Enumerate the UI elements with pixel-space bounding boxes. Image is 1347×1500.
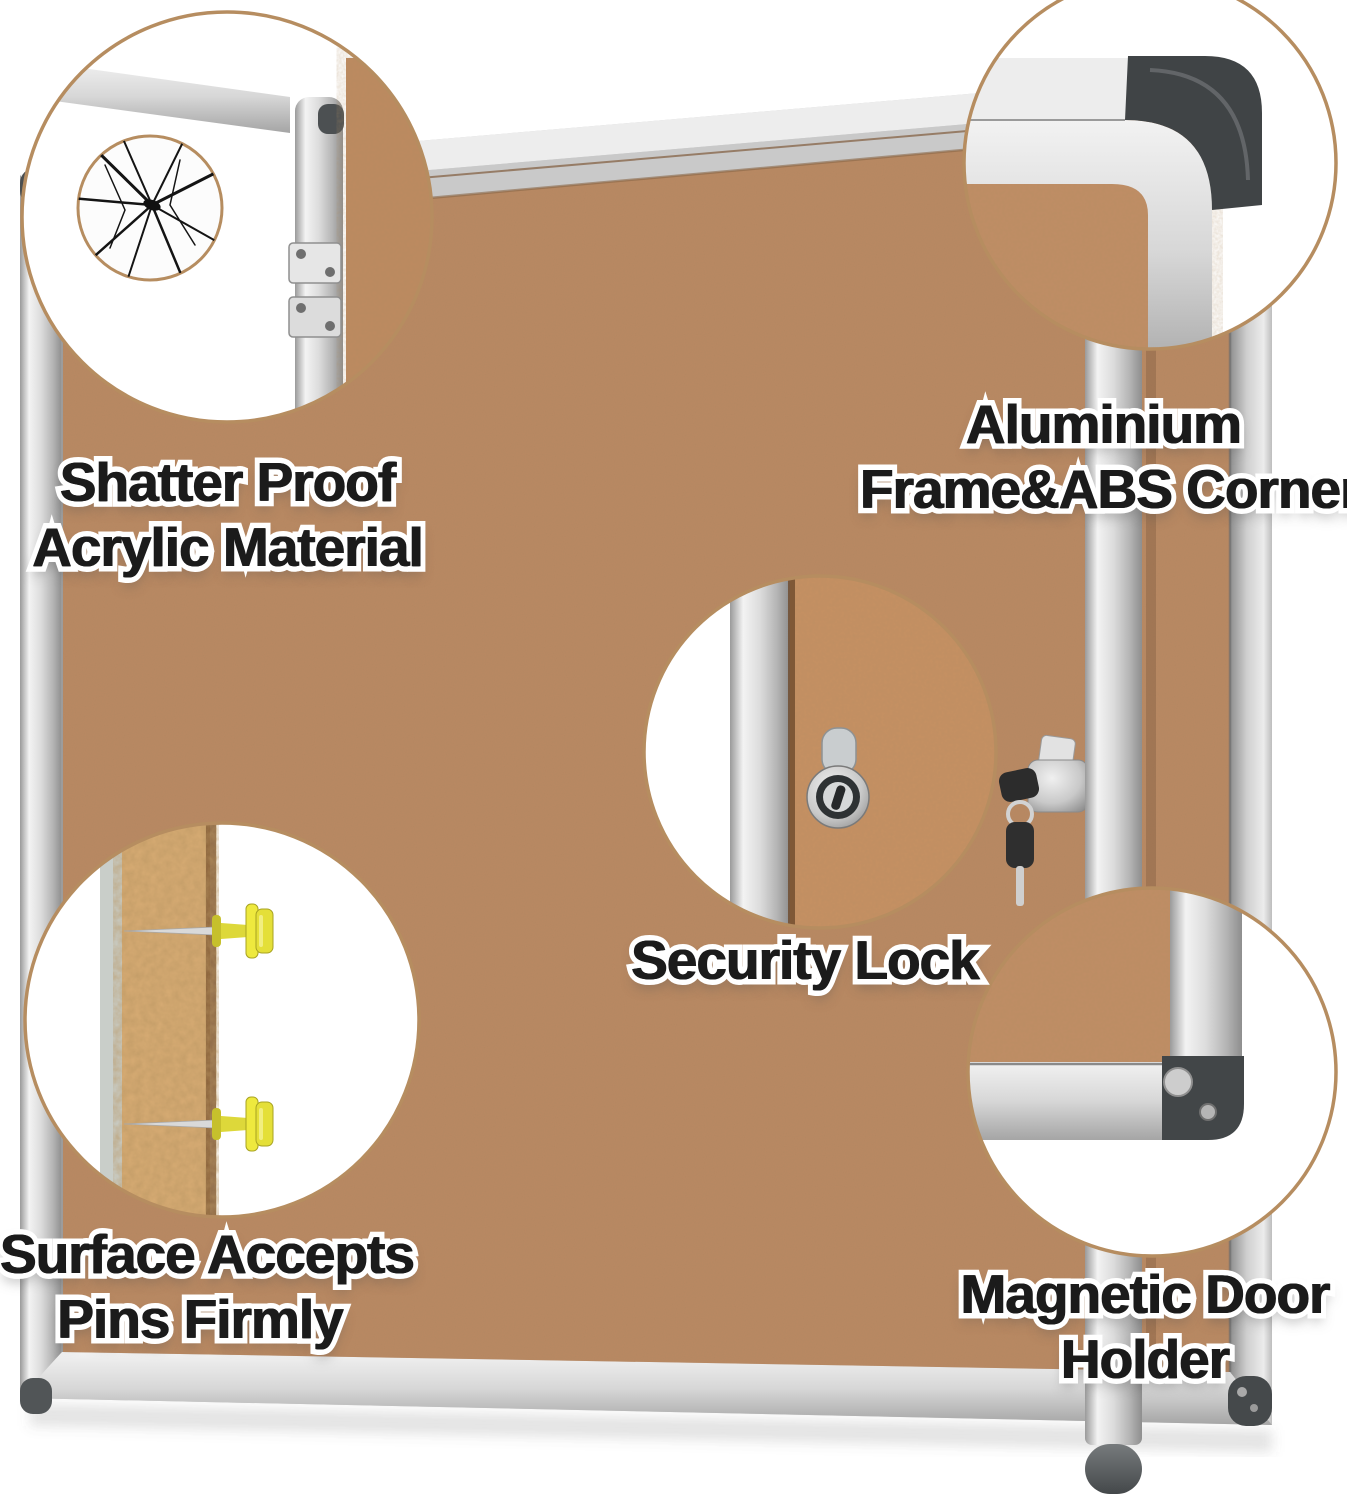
label-line: Magnetic Door bbox=[961, 1262, 1330, 1327]
label-line: Frame&ABS Corners bbox=[860, 457, 1347, 522]
frame-vertical-band bbox=[1170, 885, 1242, 1077]
label-line: Pins Firmly bbox=[57, 1287, 342, 1352]
label-magnetic-holder: Magnetic Door Holder bbox=[950, 1262, 1340, 1392]
label-pin-surface: Surface Accepts Pins Firmly bbox=[0, 1222, 400, 1352]
abs-corner-bottom-left bbox=[20, 1378, 52, 1414]
spare-key-blade bbox=[1016, 866, 1024, 906]
corner-screw bbox=[1200, 1104, 1216, 1120]
spare-key-head bbox=[1006, 822, 1034, 868]
lock-cylinder bbox=[807, 766, 869, 828]
label-line: Acrylic Material bbox=[32, 515, 423, 580]
magnet-disc bbox=[1164, 1068, 1192, 1096]
label-shatter-proof: Shatter Proof Acrylic Material bbox=[0, 450, 455, 580]
door-edge-strip bbox=[730, 570, 790, 935]
label-line: Shatter Proof bbox=[60, 450, 395, 515]
frame-left-face bbox=[20, 175, 62, 1398]
door-bar-end-cap bbox=[1085, 1444, 1142, 1494]
product-feature-image: Shatter Proof Acrylic Material Aluminium… bbox=[0, 0, 1347, 1500]
cork-backing-strip bbox=[100, 820, 122, 1225]
label-line: Holder bbox=[1061, 1327, 1229, 1392]
label-line: Aluminium bbox=[966, 392, 1241, 457]
label-line: Surface Accepts bbox=[0, 1222, 414, 1287]
label-aluminium-corners: Aluminium Frame&ABS Corners bbox=[860, 392, 1347, 522]
door-corner-cap bbox=[318, 104, 344, 134]
label-line: Security Lock bbox=[631, 928, 979, 993]
frame-horizontal-band bbox=[965, 1062, 1177, 1140]
label-security-lock: Security Lock bbox=[605, 928, 1005, 993]
